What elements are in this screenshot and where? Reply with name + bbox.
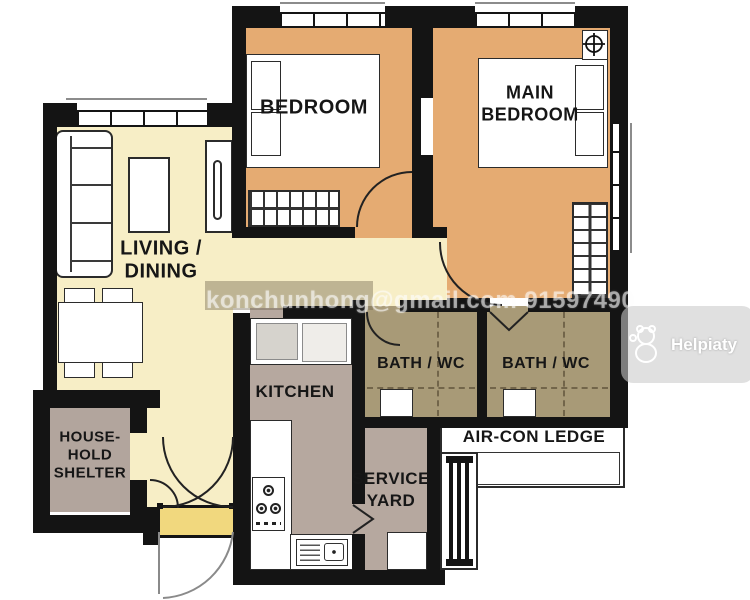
label-kitchen: KITCHEN <box>255 382 334 402</box>
label-main-bedroom: MAIN <box>506 83 554 104</box>
label-living-dining: DINING <box>125 261 198 284</box>
brand-name: Helpiaty <box>671 335 737 355</box>
label-bath1: BATH / WC <box>377 355 465 373</box>
door-arc-main-entrance <box>163 532 233 598</box>
label-main-bedroom: BEDROOM <box>481 105 579 126</box>
label-service-yard: SERVICE <box>352 469 430 489</box>
door-arc-bath1 <box>367 312 400 345</box>
floor-plan: LIVING / DINING BEDROOM MAIN BEDROOM KIT… <box>0 0 750 600</box>
door-arc-fold <box>150 480 178 508</box>
label-bedroom: BEDROOM <box>260 97 368 120</box>
label-household-shelter: HOLD <box>68 447 113 464</box>
door-arc-shelter <box>163 437 233 507</box>
label-household-shelter: SHELTER <box>54 465 126 482</box>
label-aircon-ledge: AIR-CON LEDGE <box>463 427 606 447</box>
door-arc-vestibule <box>163 437 233 507</box>
brand-watermark: Helpiaty <box>621 306 750 383</box>
label-living-dining: LIVING / <box>120 238 202 261</box>
brand-mascot-icon <box>627 322 667 368</box>
door-arc-bedroom <box>357 172 412 227</box>
label-bath2: BATH / WC <box>502 355 590 373</box>
label-service-yard: YARD <box>367 491 416 511</box>
label-household-shelter: HOUSE- <box>59 429 120 446</box>
contact-watermark: konchunhong@gmail.com 91597490 <box>206 287 635 315</box>
